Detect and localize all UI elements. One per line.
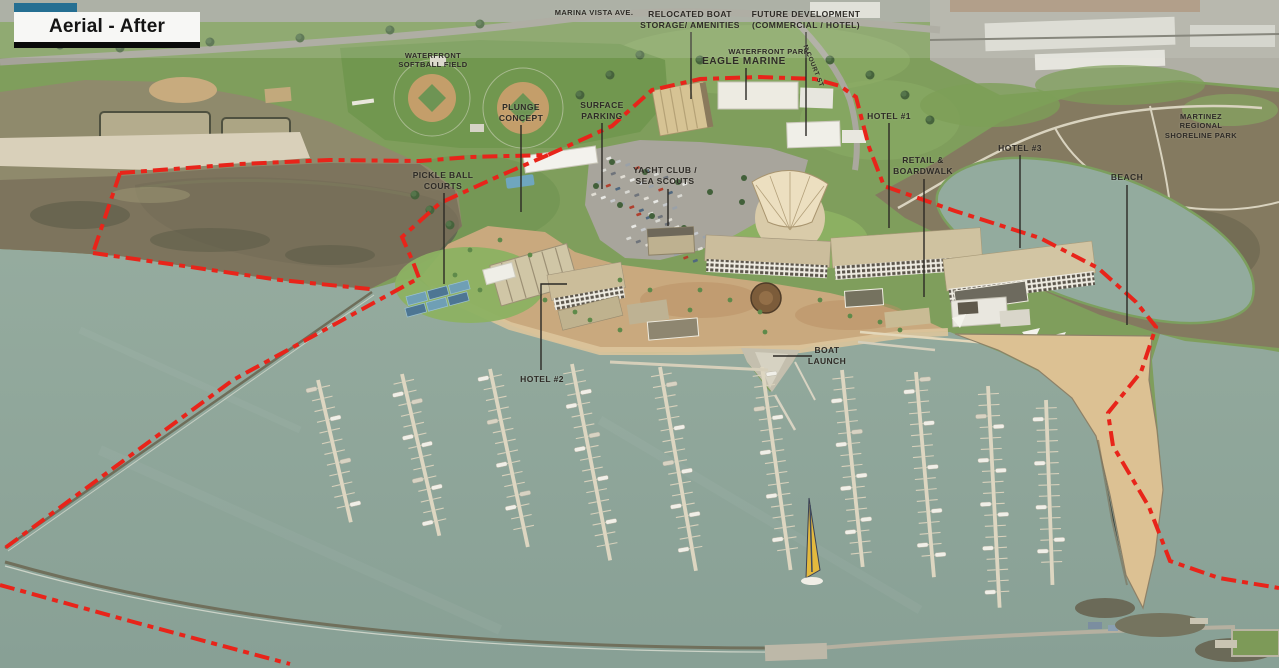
- aerial-scene: [0, 0, 1279, 668]
- slide-title: Aerial - After: [49, 16, 165, 38]
- map-label-yacht-club-sea-scouts: YACHT CLUB / SEA SCOUTS: [633, 165, 697, 186]
- map-label-hotel-1: HOTEL #1: [867, 111, 911, 122]
- badge-accent-bar: [14, 3, 77, 12]
- map-label-eagle-marine: EAGLE MARINE: [702, 56, 786, 69]
- map-label-surface-parking: SURFACE PARKING: [580, 100, 623, 121]
- map-label-future-development: FUTURE DEVELOPMENT (COMMERCIAL / HOTEL): [752, 9, 861, 30]
- aerial-after-rendering: MARINA VISTA AVE. RELOCATED BOAT STORAGE…: [0, 0, 1279, 668]
- badge-underline-bar: [14, 42, 200, 48]
- map-label-relocated-boat-storage: RELOCATED BOAT STORAGE/ AMENITIES: [640, 9, 740, 30]
- eagle-marine-building: [718, 82, 798, 109]
- map-label-hotel-3: HOTEL #3: [998, 143, 1042, 154]
- map-label-retail-boardwalk: RETAIL & BOARDWALK: [893, 155, 953, 176]
- map-label-marina-vista-ave: MARINA VISTA AVE.: [555, 8, 634, 17]
- map-label-waterfront-park: WATERFRONT PARK: [728, 47, 809, 56]
- map-label-beach: BEACH: [1111, 172, 1143, 183]
- map-label-plunge-concept: PLUNGE CONCEPT: [499, 102, 543, 123]
- map-label-waterfront-softball-field: WATERFRONT SOFTBALL FIELD: [398, 51, 467, 70]
- hotel-1-west-wing: [704, 235, 831, 278]
- slide-title-badge: Aerial - After: [14, 3, 200, 48]
- future-development-building: [787, 121, 841, 148]
- map-label-boat-launch: BOAT LAUNCH: [808, 345, 846, 366]
- map-label-hotel-2: HOTEL #2: [520, 374, 564, 385]
- map-label-martinez-regional-shoreline-park: MARTINEZ REGIONAL SHORELINE PARK: [1162, 112, 1240, 140]
- yacht-club-building: [647, 227, 694, 255]
- map-label-pickle-ball-courts: PICKLE BALL COURTS: [413, 170, 474, 191]
